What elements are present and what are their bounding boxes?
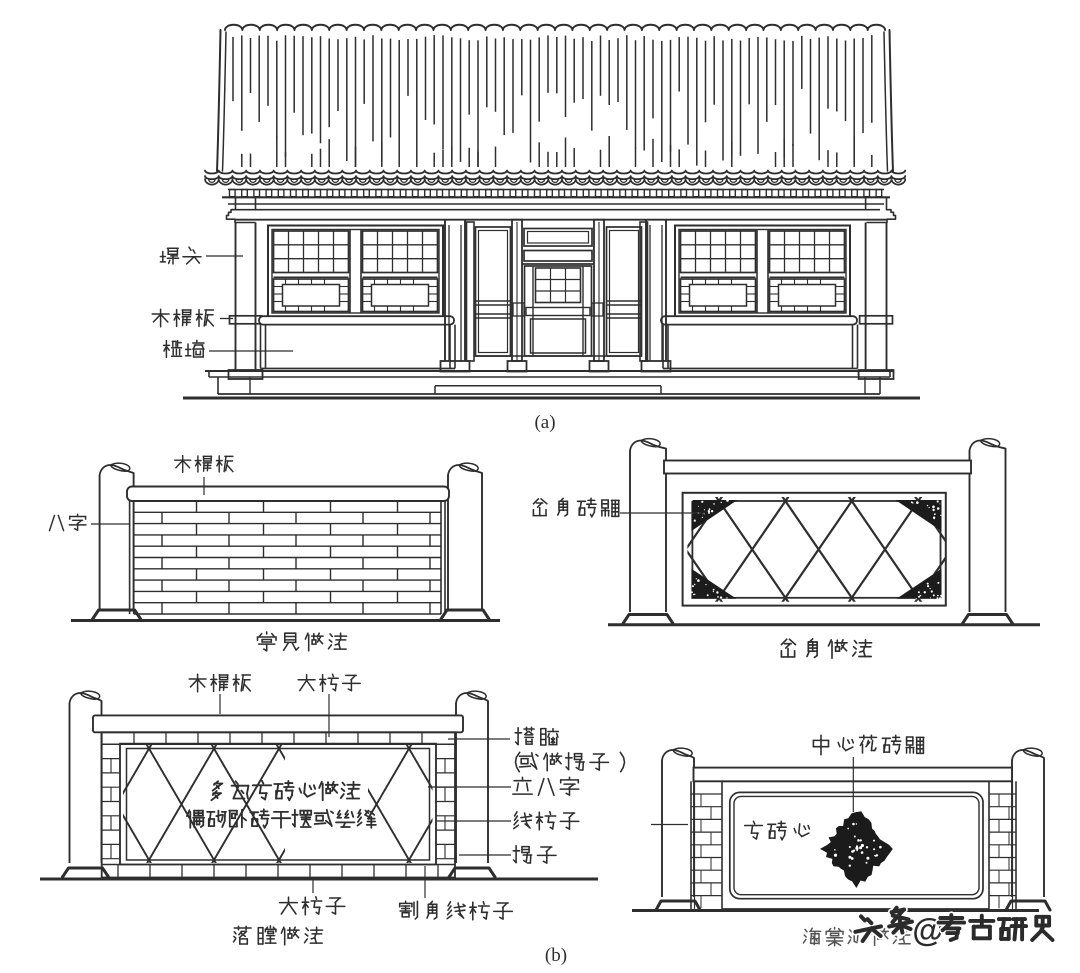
svg-text:(a): (a) — [534, 412, 555, 433]
svg-text:(b): (b) — [545, 945, 567, 966]
